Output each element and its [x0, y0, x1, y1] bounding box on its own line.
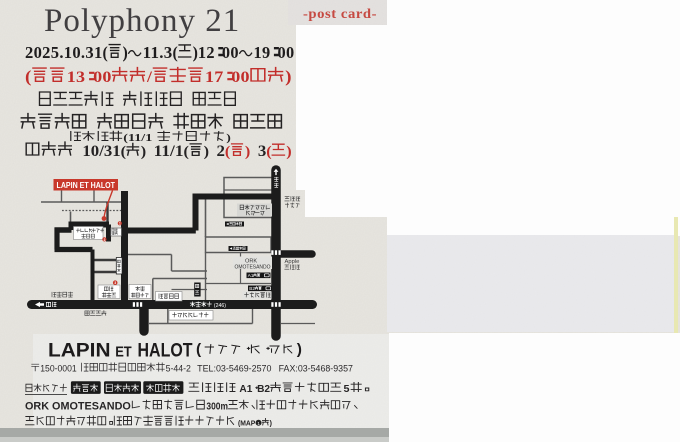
- svg-text:19: 19: [254, 43, 271, 62]
- svg-text:(: (: [196, 342, 201, 358]
- svg-text:1: 1: [119, 222, 121, 226]
- svg-text:(: (: [103, 43, 108, 62]
- svg-text:-post card-: -post card-: [303, 6, 377, 21]
- svg-text:LAPIN: LAPIN: [48, 339, 111, 361]
- svg-text:): ): [226, 132, 231, 144]
- svg-text:A1: A1: [239, 384, 252, 395]
- svg-text:(11/1: (11/1: [123, 132, 152, 144]
- svg-text:LAPIN ET HALOT: LAPIN ET HALOT: [57, 180, 116, 190]
- svg-text:150-0001: 150-0001: [40, 363, 76, 374]
- svg-text:5: 5: [343, 384, 349, 395]
- svg-text:11/1: 11/1: [154, 144, 184, 160]
- svg-text:A1: A1: [248, 273, 254, 278]
- svg-text:): ): [286, 144, 291, 160]
- svg-text:ET: ET: [115, 344, 132, 360]
- svg-text:(MAP: (MAP: [238, 418, 255, 427]
- svg-text:): ): [297, 342, 302, 358]
- svg-text:B2: B2: [249, 286, 255, 291]
- svg-text:ORK OMOTESANDO: ORK OMOTESANDO: [25, 401, 131, 413]
- svg-text:Polyphony 21: Polyphony 21: [44, 3, 240, 39]
- svg-text:Apple: Apple: [285, 259, 300, 265]
- svg-text:OMOTESANDO: OMOTESANDO: [235, 265, 271, 271]
- svg-text:10/31: 10/31: [82, 144, 120, 160]
- svg-text:/: /: [146, 68, 152, 86]
- svg-text:3: 3: [258, 144, 266, 160]
- svg-text:(246): (246): [214, 303, 226, 309]
- svg-text:12: 12: [198, 43, 215, 62]
- svg-text:00: 00: [222, 43, 239, 62]
- svg-text:2: 2: [104, 238, 106, 242]
- svg-text:FAX:03-5468-9357: FAX:03-5468-9357: [279, 363, 353, 374]
- svg-text:5-44-2: 5-44-2: [166, 363, 191, 374]
- svg-text:): ): [245, 144, 250, 160]
- svg-text:00: 00: [231, 68, 250, 86]
- svg-text:): ): [141, 144, 146, 160]
- svg-text:11.3: 11.3: [143, 43, 173, 62]
- svg-text:HALOT: HALOT: [138, 339, 193, 361]
- svg-text:300m: 300m: [206, 401, 228, 413]
- svg-text:(: (: [25, 67, 31, 87]
- svg-text:(: (: [225, 144, 230, 160]
- svg-text:TEL:03-5469-2570: TEL:03-5469-2570: [197, 363, 271, 374]
- svg-text:2025.10.31: 2025.10.31: [25, 43, 103, 62]
- svg-text:): ): [285, 67, 291, 87]
- svg-text:): ): [123, 43, 128, 62]
- svg-text:17: 17: [205, 68, 224, 86]
- svg-text:(: (: [173, 43, 178, 62]
- svg-text:): ): [204, 144, 209, 160]
- svg-text:00: 00: [278, 43, 295, 62]
- svg-text:(: (: [266, 144, 271, 160]
- svg-text:B2: B2: [257, 384, 270, 395]
- svg-text:(: (: [121, 144, 126, 160]
- svg-text:3: 3: [114, 281, 116, 285]
- svg-text:(: (: [184, 144, 189, 160]
- svg-text:13: 13: [67, 68, 86, 86]
- svg-text:2: 2: [216, 144, 224, 160]
- svg-text:00: 00: [93, 68, 112, 86]
